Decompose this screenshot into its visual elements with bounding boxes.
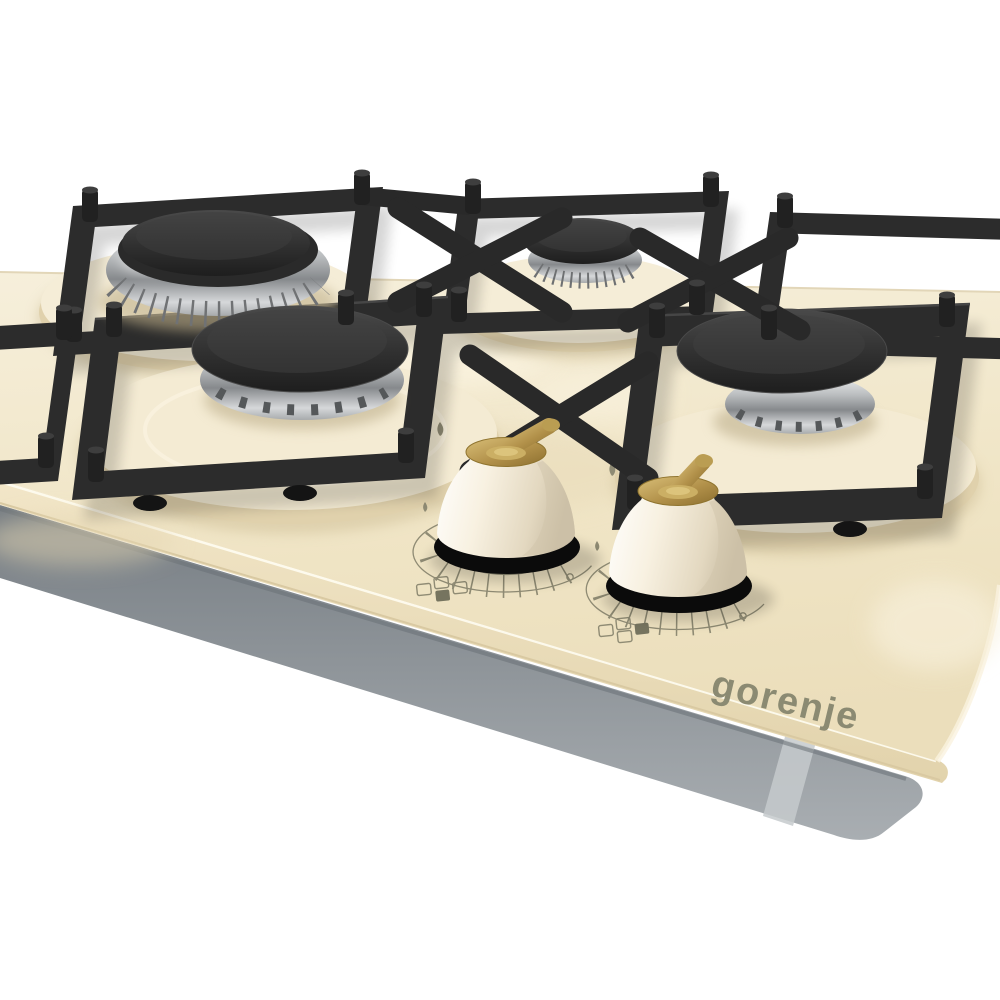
cap-sheen — [136, 212, 292, 260]
product-photo-gas-hob: gorenje — [0, 0, 1000, 1000]
burner-front-left — [192, 306, 408, 430]
support-bridge-bar — [362, 196, 470, 206]
knob-hub-highlight — [494, 448, 518, 456]
knob-hub-highlight — [666, 487, 690, 495]
handle-tip — [542, 419, 560, 432]
cap-sheen — [207, 309, 387, 373]
handle-tip — [695, 455, 713, 468]
hob-illustration: gorenje — [0, 0, 1000, 1000]
